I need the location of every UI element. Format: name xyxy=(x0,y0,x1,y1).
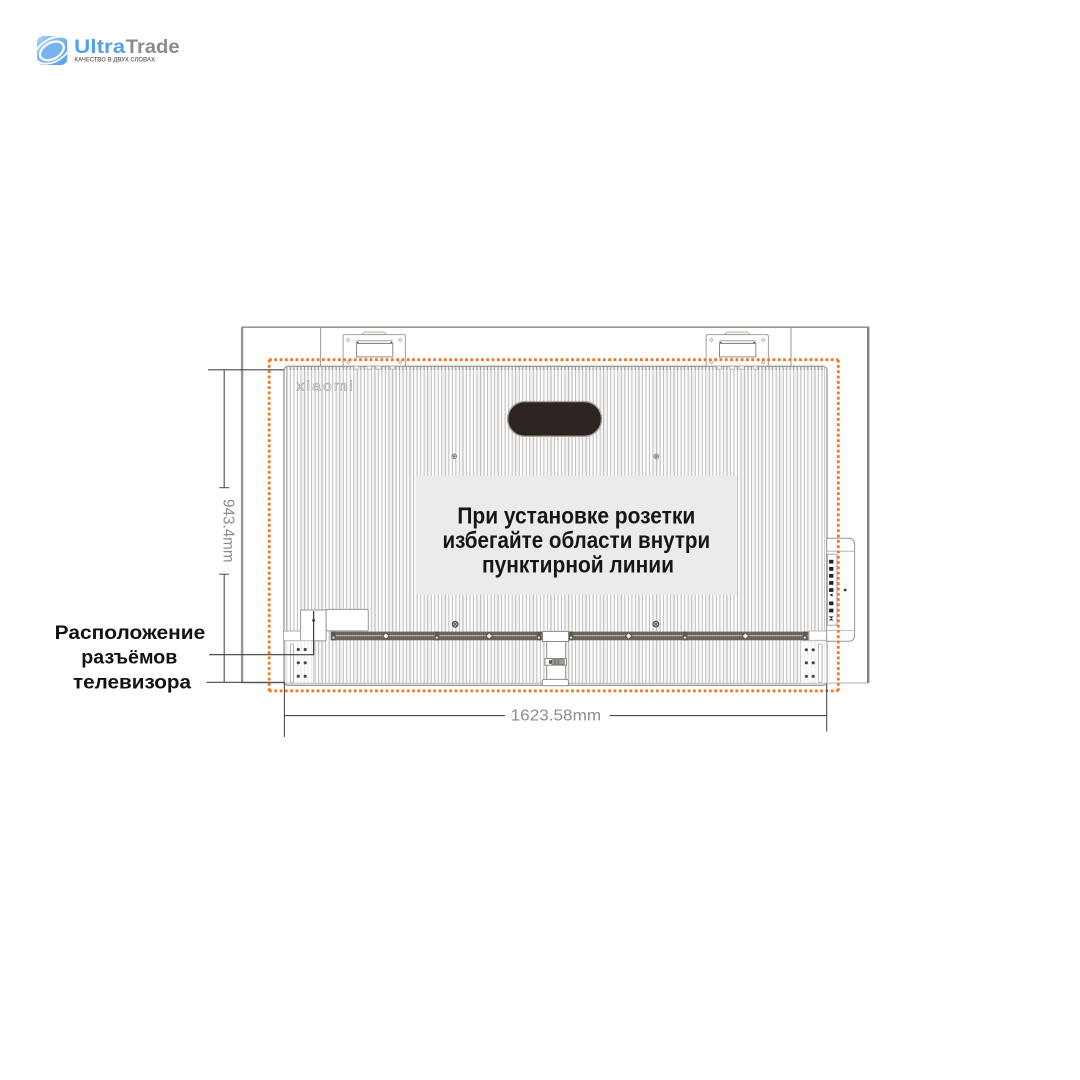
svg-text:1623.58mm: 1623.58mm xyxy=(511,708,602,725)
svg-text:избегайте области внутри: избегайте области внутри xyxy=(442,527,710,553)
svg-text:Trade: Trade xyxy=(126,37,180,58)
svg-text:разъёмов: разъёмов xyxy=(81,646,177,668)
svg-text:943.4mm: 943.4mm xyxy=(220,499,237,563)
svg-text:пунктирной линии: пунктирной линии xyxy=(482,551,674,577)
svg-text:Ultra: Ultra xyxy=(74,37,125,58)
svg-text:телевизора: телевизора xyxy=(73,671,191,693)
svg-text:При установке розетки: При установке розетки xyxy=(457,503,695,529)
svg-text:xiaomi: xiaomi xyxy=(297,379,356,394)
svg-text:Расположение: Расположение xyxy=(55,622,206,644)
svg-text:КАЧЕСТВО В ДВУХ СЛОВАХ: КАЧЕСТВО В ДВУХ СЛОВАХ xyxy=(75,56,156,63)
